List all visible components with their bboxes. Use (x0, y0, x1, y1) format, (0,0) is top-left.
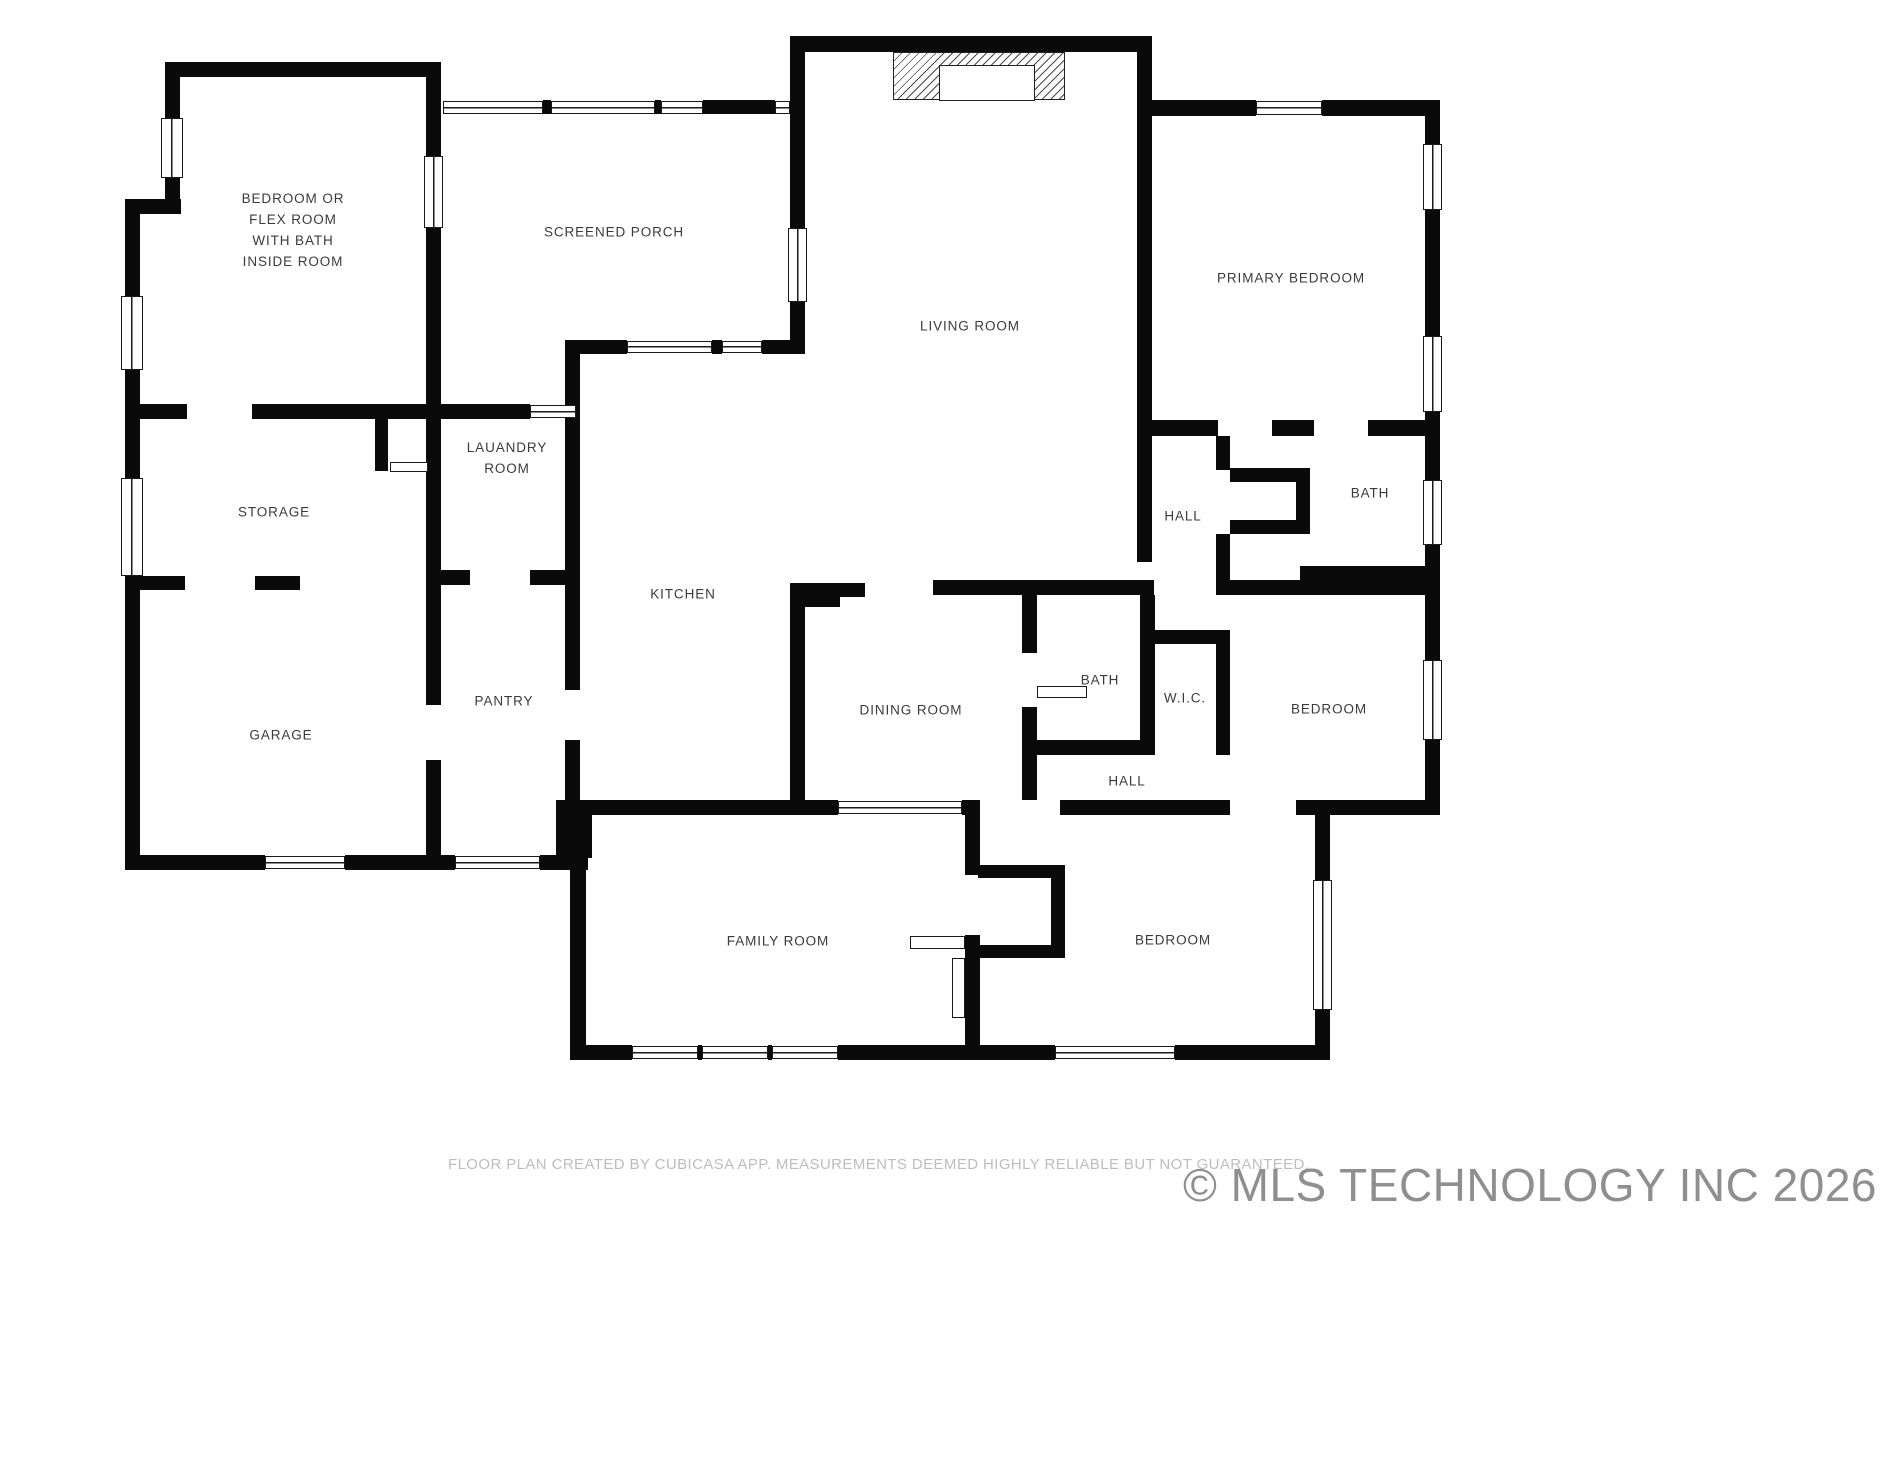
wall-segment (805, 597, 840, 607)
wall-segment (1140, 595, 1155, 755)
window (121, 478, 143, 576)
window (1423, 480, 1442, 545)
window (443, 101, 543, 114)
wall-segment (255, 576, 300, 590)
wall-segment (441, 404, 530, 419)
floorplan-canvas: BEDROOM OR FLEX ROOM WITH BATH INSIDE RO… (0, 0, 1891, 1460)
room-label-hall-lower: HALL (1108, 772, 1145, 793)
wall-segment (1425, 116, 1440, 144)
door-leaf (910, 936, 965, 949)
wall-segment (1216, 580, 1440, 595)
wall-segment (165, 62, 180, 120)
window (632, 1046, 698, 1059)
window (1423, 144, 1442, 210)
wall-segment (1137, 36, 1152, 116)
room-label-storage: STORAGE (238, 503, 310, 524)
window (455, 856, 540, 869)
wall-segment (1272, 420, 1314, 436)
wall-segment (1022, 740, 1140, 755)
room-label-hall-upper: HALL (1164, 507, 1201, 528)
window (1055, 1046, 1175, 1059)
wall-segment (426, 585, 441, 705)
wall-segment (1216, 630, 1230, 755)
wall-segment (1230, 520, 1310, 534)
wall-segment (543, 100, 551, 114)
room-label-laundry-room: LAUANDRY ROOM (467, 438, 547, 480)
wall-segment (592, 800, 790, 815)
window (161, 118, 183, 178)
wall-segment (978, 865, 1065, 878)
wall-segment (790, 36, 1152, 52)
wall-segment (1152, 100, 1256, 116)
wall-segment (426, 62, 441, 158)
wall-segment (1140, 580, 1154, 595)
wall-segment (570, 815, 586, 1060)
wall-segment (790, 52, 805, 228)
wall-segment (1315, 1010, 1330, 1060)
wall-segment (428, 419, 441, 471)
wall-segment (125, 199, 140, 298)
room-label-garage: GARAGE (249, 726, 312, 747)
wall-segment (838, 1045, 965, 1060)
window (265, 856, 345, 869)
room-label-dining-room: DINING ROOM (860, 701, 963, 722)
wall-segment (1216, 436, 1230, 470)
wall-segment (565, 740, 580, 815)
wall-segment (712, 340, 722, 354)
wall-segment (345, 855, 455, 870)
room-label-bath-middle: BATH (1081, 671, 1120, 692)
window (530, 405, 576, 418)
wall-segment (1051, 878, 1065, 945)
wall-segment (1425, 595, 1440, 660)
window (722, 341, 762, 353)
window (775, 101, 790, 114)
wall-segment (805, 583, 865, 597)
window (661, 101, 703, 114)
window (551, 101, 655, 114)
wall-segment (1022, 595, 1037, 653)
door-leaf (952, 958, 965, 1018)
wall-segment (125, 404, 187, 419)
wall-segment (165, 62, 441, 77)
wall-segment (965, 1045, 1055, 1060)
window (772, 1046, 838, 1059)
wall-segment (1037, 580, 1140, 595)
window (788, 228, 807, 302)
room-label-bath-upper: BATH (1351, 484, 1390, 505)
wall-segment (805, 800, 838, 815)
room-label-wic: W.I.C. (1164, 689, 1206, 710)
wall-segment (1300, 566, 1425, 580)
room-label-living-room: LIVING ROOM (920, 317, 1020, 338)
wall-segment (125, 419, 140, 479)
wall-segment (1425, 740, 1440, 815)
wall-segment (1230, 468, 1310, 482)
wall-segment (530, 570, 580, 585)
wall-segment (125, 590, 140, 855)
fireplace (893, 52, 1065, 100)
wall-segment (1425, 210, 1440, 336)
wall-segment (1425, 545, 1440, 580)
wall-segment (978, 945, 1065, 958)
wall-segment (125, 855, 265, 870)
window (1423, 660, 1442, 740)
room-label-family-room: FAMILY ROOM (727, 932, 829, 953)
wall-segment (790, 583, 805, 815)
mls-watermark: © MLS TECHNOLOGY INC 2026 (1183, 1158, 1877, 1212)
wall-segment (426, 760, 441, 855)
floorplan-page: BEDROOM OR FLEX ROOM WITH BATH INSIDE RO… (0, 0, 1891, 1460)
wall-segment (962, 800, 980, 815)
wall-segment (1425, 436, 1440, 480)
wall-segment (1175, 1045, 1330, 1060)
wall-segment (1137, 116, 1152, 562)
room-label-screened-porch: SCREENED PORCH (544, 223, 684, 244)
wall-segment (1296, 482, 1310, 520)
window (702, 1046, 768, 1059)
room-label-bedroom-right: BEDROOM (1291, 700, 1367, 721)
wall-segment (125, 576, 185, 590)
wall-segment (1322, 100, 1440, 116)
room-label-pantry: PANTRY (475, 692, 534, 713)
window (1423, 336, 1442, 412)
window (838, 801, 962, 814)
wall-segment (252, 404, 441, 419)
room-label-kitchen: KITCHEN (650, 585, 716, 606)
wall-segment (565, 340, 580, 690)
wall-segment (933, 580, 1037, 595)
room-label-bedroom-bottom: BEDROOM (1135, 931, 1211, 952)
wall-segment (426, 570, 470, 585)
window (1256, 101, 1322, 115)
wall-segment (703, 100, 775, 114)
wall-segment (375, 419, 388, 471)
door-leaf (390, 462, 428, 472)
wall-segment (1296, 800, 1440, 815)
wall-segment (1140, 630, 1216, 644)
window (121, 296, 143, 370)
wall-segment (1368, 420, 1440, 436)
fireplace-opening (939, 65, 1035, 101)
window (424, 156, 443, 228)
wall-segment (1216, 534, 1230, 580)
window (627, 341, 712, 353)
door-leaf (1037, 686, 1087, 698)
wall-segment (790, 302, 805, 354)
wall-segment (1060, 800, 1230, 815)
floorplan-disclaimer: FLOOR PLAN CREATED BY CUBICASA APP. MEAS… (448, 1156, 1309, 1173)
wall-segment (762, 340, 790, 354)
room-label-bedroom-flex: BEDROOM OR FLEX ROOM WITH BATH INSIDE RO… (242, 189, 345, 273)
wall-segment (570, 1045, 632, 1060)
window (1313, 880, 1332, 1010)
room-label-primary-bedroom: PRIMARY BEDROOM (1217, 269, 1365, 290)
wall-segment (1152, 420, 1218, 436)
wall-segment (1315, 815, 1330, 880)
